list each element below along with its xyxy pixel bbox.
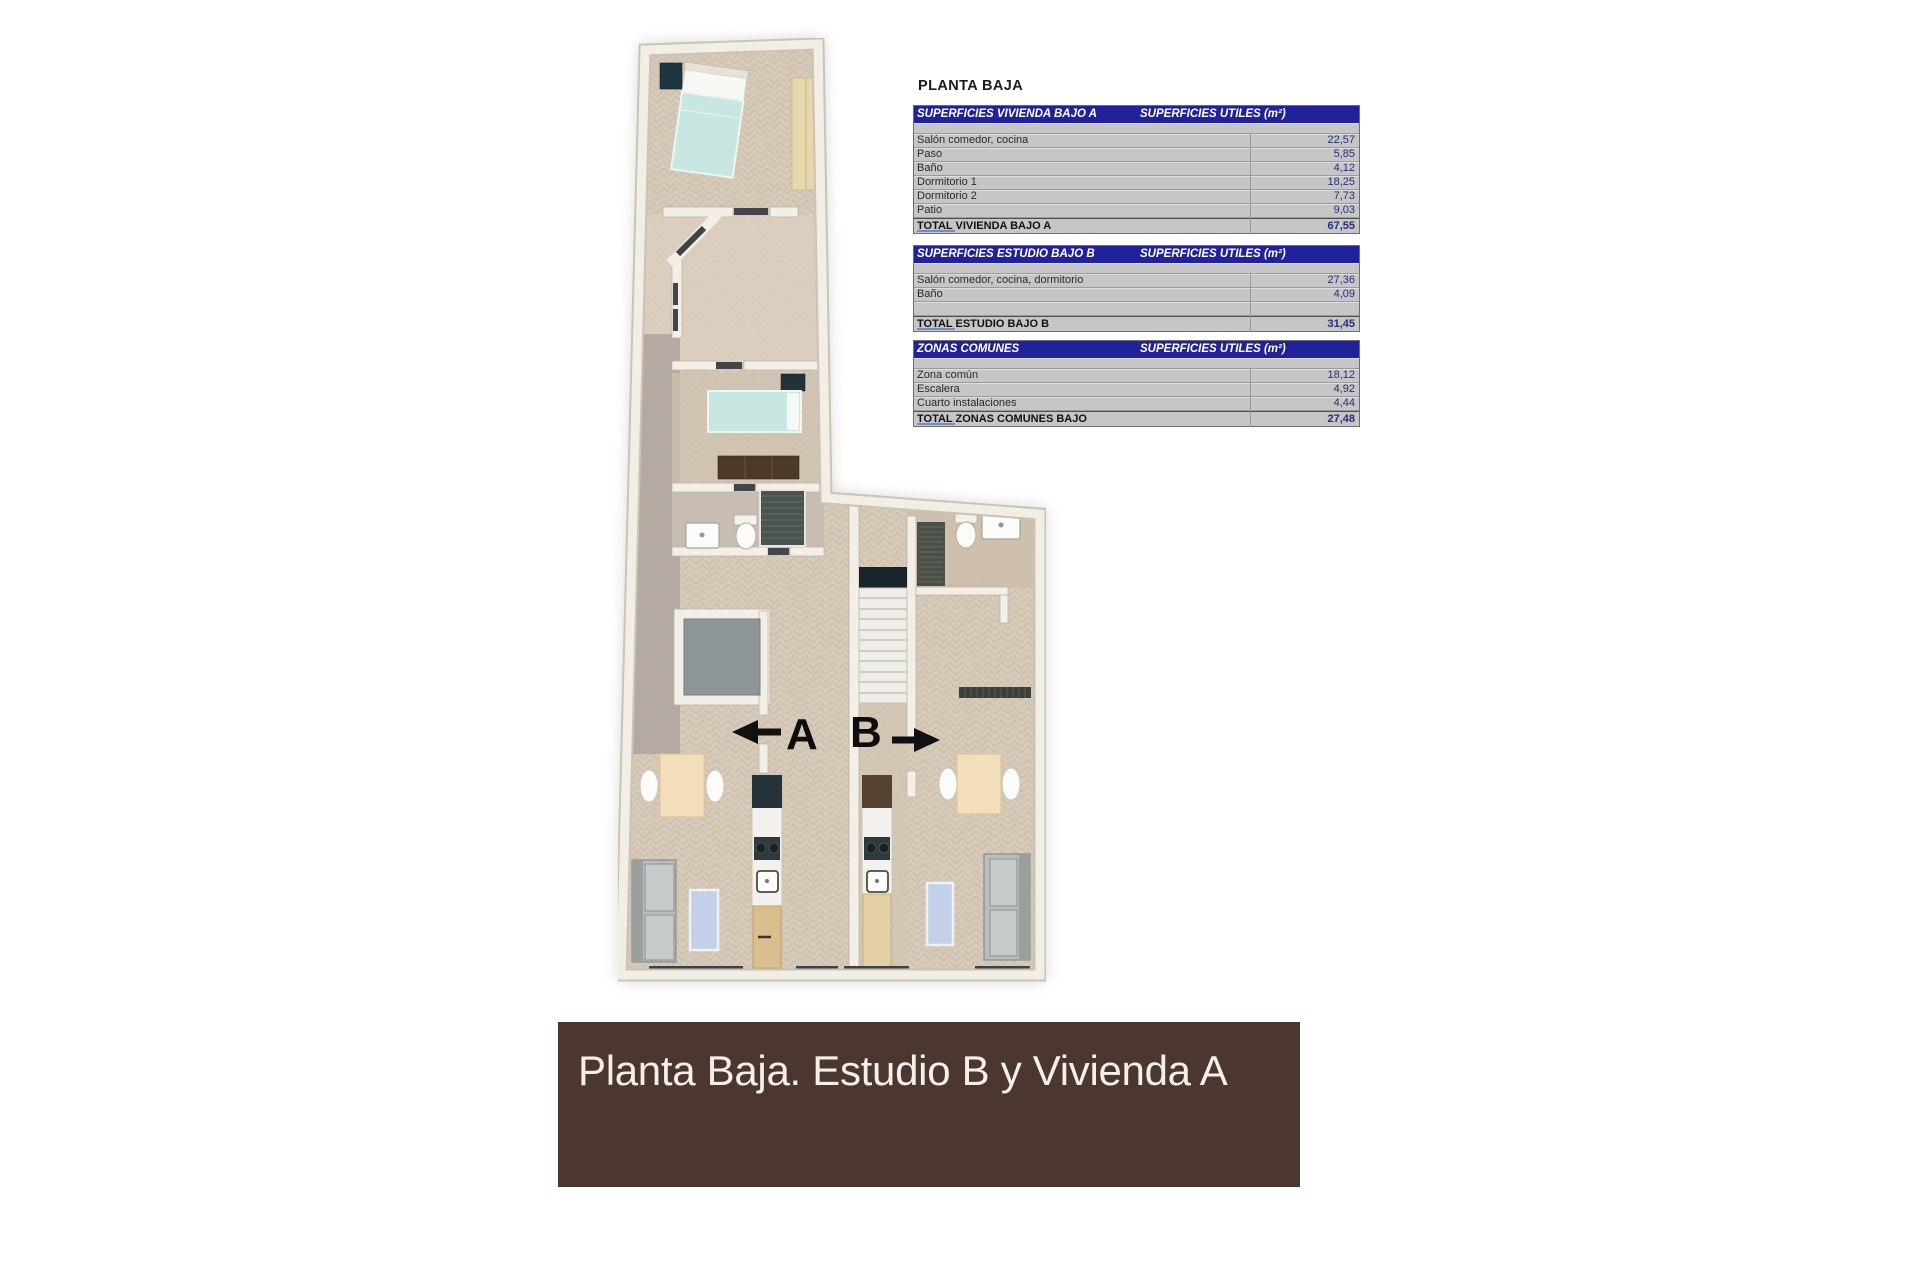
table-row: Zona común 18,12 [914,369,1359,383]
row-value: 18,12 [1251,369,1359,382]
caption-banner: Planta Baja. Estudio B y Vivienda A [558,1022,1300,1187]
row-label: Zona común [917,369,978,382]
row-value: 18,25 [1251,176,1359,189]
table-total-row: TOTAL ESTUDIO BAJO B 31,45 [914,316,1359,331]
table-header: SUPERFICIES VIVIENDA BAJO A SUPERFICIES … [914,106,1359,123]
row-label: Dormitorio 2 [917,190,977,203]
chair [706,770,724,802]
table-total-row: TOTAL ZONAS COMUNES BAJO 27,48 [914,411,1359,426]
total-label: TOTAL ZONAS COMUNES BAJO [917,412,1087,426]
total-value: 31,45 [1251,317,1359,331]
table-row: Salón comedor, cocina, dormitorio 27,36 [914,274,1359,288]
dresser [718,456,799,479]
row-label: Dormitorio 1 [917,176,977,189]
row-value: 4,44 [1251,397,1359,410]
stair-landing [859,567,907,588]
table-row: Escalera 4,92 [914,383,1359,397]
chair [640,770,658,802]
row-value: 4,12 [1251,162,1359,175]
row-label: Paso [917,148,942,161]
table-row: Paso 5,85 [914,148,1359,162]
total-value: 67,55 [1251,219,1359,233]
table-header-units: SUPERFICIES UTILES (m²) [1140,341,1280,358]
row-value: 5,85 [1251,148,1359,161]
row-label: Baño [917,162,943,175]
total-label: TOTAL ESTUDIO BAJO B [917,317,1049,331]
shower [760,490,805,546]
table-total-row: TOTAL VIVIENDA BAJO A 67,55 [914,218,1359,233]
unit-b-label: B [850,708,882,757]
row-label: Patio [917,204,942,217]
staircase [859,567,907,703]
unit-a-label: A [786,710,818,759]
table-header-units: SUPERFICIES UTILES (m²) [1140,106,1280,123]
rug-a [690,890,718,950]
bathroom-sink [686,523,719,548]
sofa-a [632,860,676,962]
table-row: Baño 4,12 [914,162,1359,176]
row-label: Escalera [917,383,960,396]
table-spacer-row [914,263,1359,274]
caption-text: Planta Baja. Estudio B y Vivienda A [578,1048,1227,1094]
nightstand [660,63,682,89]
row-value: 4,92 [1251,383,1359,396]
table-vivienda-a: SUPERFICIES VIVIENDA BAJO A SUPERFICIES … [913,105,1360,234]
table-row: Cuarto instalaciones 4,44 [914,397,1359,411]
table-header-units: SUPERFICIES UTILES (m²) [1140,246,1280,263]
table-estudio-b: SUPERFICIES ESTUDIO BAJO B SUPERFICIES U… [913,245,1360,332]
table-header-title: ZONAS COMUNES [917,341,1019,358]
row-label: Salón comedor, cocina, dormitorio [917,274,1083,287]
row-value: 4,09 [1251,288,1359,301]
radiator [917,522,945,586]
table-header-title: SUPERFICIES ESTUDIO BAJO B [917,246,1095,263]
table-row: Dormitorio 2 7,73 [914,190,1359,204]
bench-radiator [959,687,1031,698]
table-header: SUPERFICIES ESTUDIO BAJO B SUPERFICIES U… [914,246,1359,263]
page: { "title": "PLANTA BAJA", "tables": [ { … [0,0,1920,1280]
chair [1002,768,1020,800]
table-header: ZONAS COMUNES SUPERFICIES UTILES (m²) [914,341,1359,358]
table-header-title: SUPERFICIES VIVIENDA BAJO A [917,106,1097,123]
row-label: Baño [917,288,943,301]
chair [939,768,957,800]
total-value: 27,48 [1251,412,1359,426]
table-row: Patio 9,03 [914,204,1359,218]
table-row-empty [914,302,1359,316]
total-label: TOTAL VIVIENDA BAJO A [917,219,1051,233]
row-value: 27,36 [1251,274,1359,287]
row-value: 9,03 [1251,204,1359,217]
kitchen-island-a [752,775,782,972]
table-zonas-comunes: ZONAS COMUNES SUPERFICIES UTILES (m²) Zo… [913,340,1360,427]
rug-b [927,883,953,945]
table-row: Baño 4,09 [914,288,1359,302]
page-title: PLANTA BAJA [918,78,1023,94]
row-label: Cuarto instalaciones [917,397,1017,410]
table-row: Salón comedor, cocina 22,57 [914,134,1359,148]
row-value: 7,73 [1251,190,1359,203]
utility-room [684,619,760,695]
row-label: Salón comedor, cocina [917,134,1028,147]
sofa-b [984,854,1030,960]
kitchen-island-b [862,775,892,972]
row-value: 22,57 [1251,134,1359,147]
toilet-b [955,514,977,548]
table-row: Dormitorio 1 18,25 [914,176,1359,190]
table-spacer-row [914,123,1359,134]
table-spacer-row [914,358,1359,369]
